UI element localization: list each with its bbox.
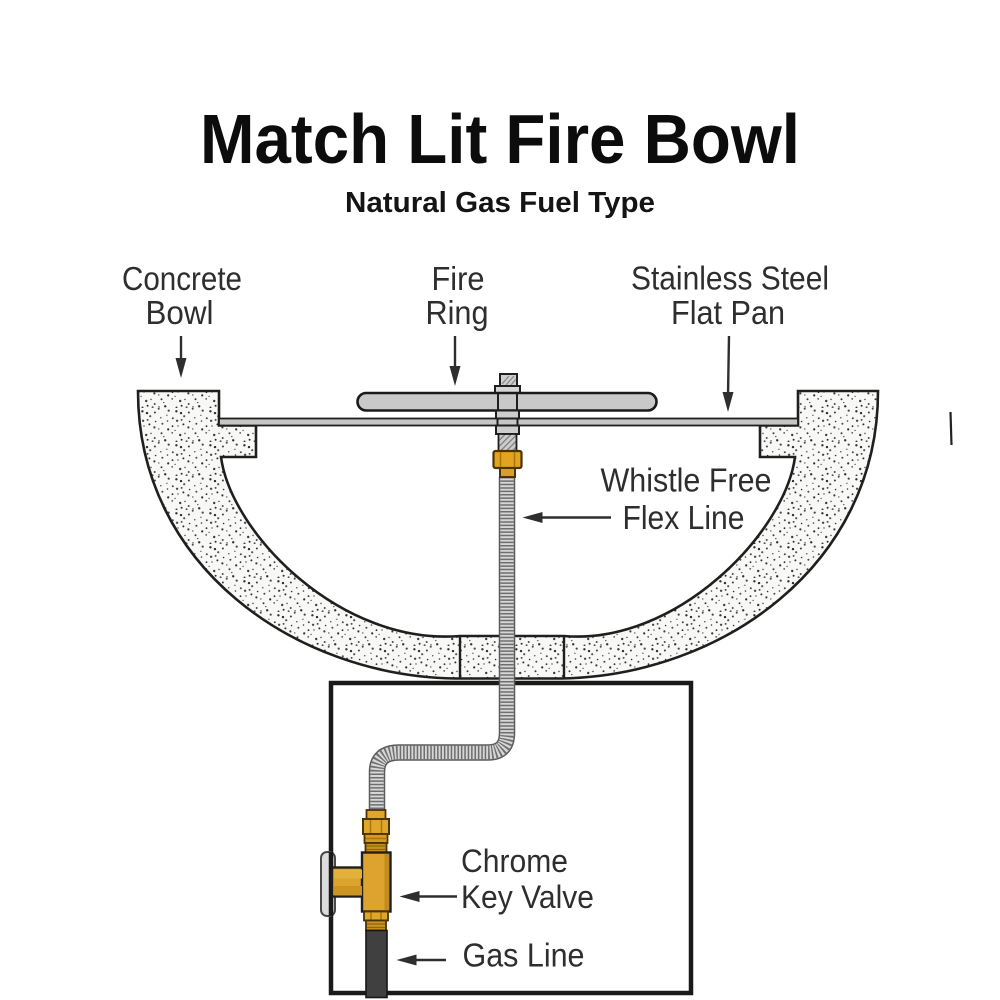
svg-text:Natural Gas Fuel Type: Natural Gas Fuel Type xyxy=(345,187,655,219)
svg-text:Bowl: Bowl xyxy=(146,294,214,331)
svg-text:Fire: Fire xyxy=(432,260,485,297)
svg-text:Key Valve: Key Valve xyxy=(461,879,594,915)
svg-text:Flat Pan: Flat Pan xyxy=(671,294,785,331)
svg-text:Gas Line: Gas Line xyxy=(463,937,585,974)
svg-text:Flex Line: Flex Line xyxy=(623,499,745,536)
svg-text:Stainless Steel: Stainless Steel xyxy=(631,260,829,297)
svg-text:Match Lit Fire Bowl: Match Lit Fire Bowl xyxy=(200,100,800,178)
svg-text:Whistle Free: Whistle Free xyxy=(601,462,772,499)
svg-text:Ring: Ring xyxy=(426,294,489,331)
svg-text:Chrome: Chrome xyxy=(461,843,568,879)
svg-text:Concrete: Concrete xyxy=(122,260,242,297)
